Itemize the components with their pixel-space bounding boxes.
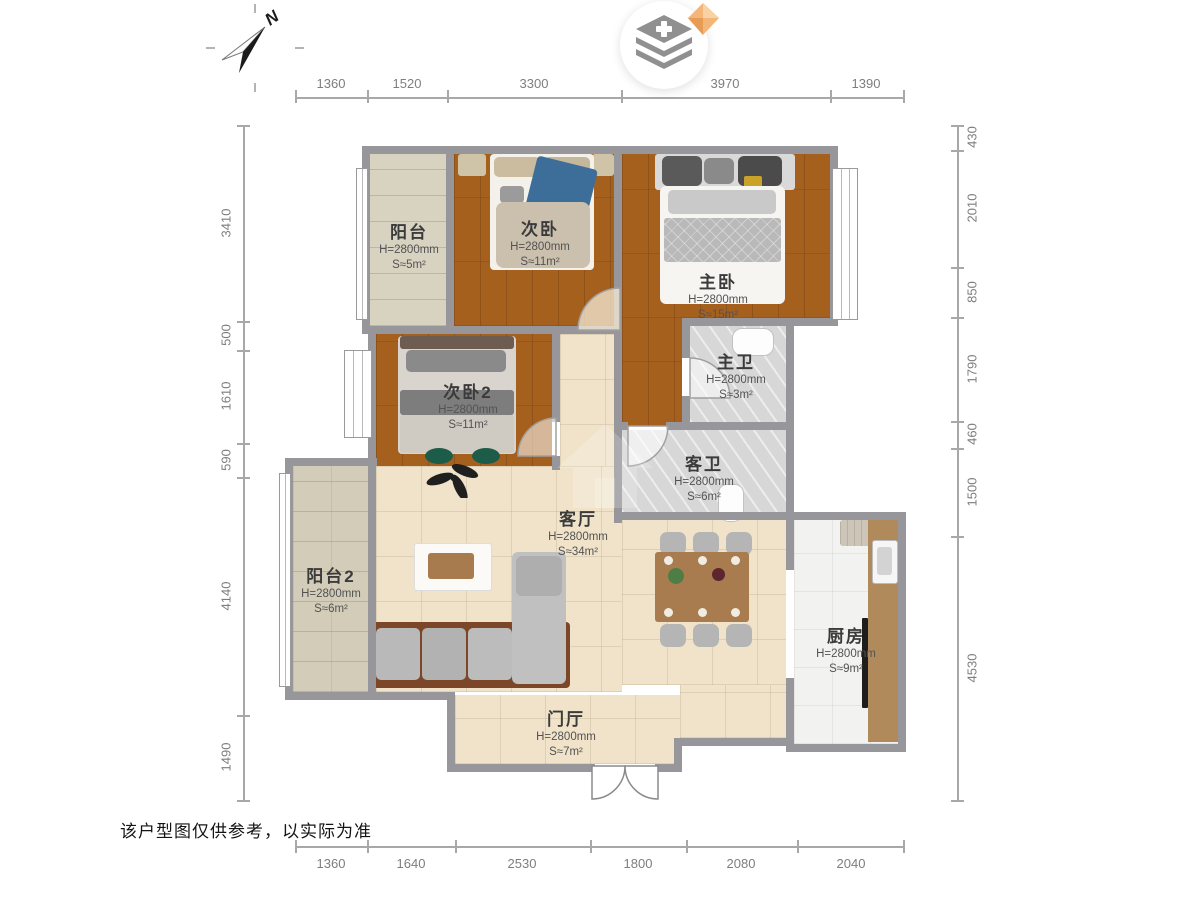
wall-segment	[786, 744, 906, 752]
dim-tick	[237, 125, 250, 127]
dining-chair	[693, 624, 719, 647]
headboard	[400, 336, 514, 349]
room-name: 阳台2	[301, 562, 361, 587]
room-label-balcony1: 阳台 H=2800mm S≈5m²	[379, 218, 439, 273]
sofa-cushion	[516, 556, 562, 596]
room-area: S≈15m²	[688, 308, 748, 323]
wall-segment	[447, 764, 595, 772]
wardrobe-item	[662, 156, 702, 186]
dim-tick	[951, 800, 964, 802]
dim-tick	[951, 125, 964, 127]
room-area: S≈3m²	[706, 388, 766, 403]
watermark-house-icon	[545, 408, 665, 518]
dim-tick	[951, 317, 964, 319]
sofa-cushion	[422, 628, 466, 680]
compass-north-arrow: N	[198, 2, 308, 94]
entry-double-door	[585, 764, 665, 804]
wall-segment	[682, 318, 690, 358]
dim-tick	[237, 350, 250, 352]
dim-label: 1790	[965, 355, 980, 384]
dim-tick	[830, 90, 832, 103]
room-name: 阳台	[379, 218, 439, 243]
dim-tick	[237, 715, 250, 717]
room-label-masterbath: 主卫 H=2800mm S≈3m²	[706, 348, 766, 403]
plate	[731, 556, 740, 565]
room-area: S≈7m²	[536, 745, 596, 760]
dim-label: 2530	[508, 856, 537, 871]
room-height: H=2800mm	[438, 403, 498, 418]
room-label-guestbath: 客卫 H=2800mm S≈6m²	[674, 450, 734, 505]
room-height: H=2800mm	[674, 475, 734, 490]
window-balcony1	[356, 168, 368, 320]
room-name: 客厅	[548, 505, 608, 530]
room-label-kitchen: 厨房 H=2800mm S≈9m²	[816, 622, 876, 677]
room-height: H=2800mm	[536, 730, 596, 745]
room-label-balcony2: 阳台2 H=2800mm S≈6m²	[301, 562, 361, 617]
wall-segment	[368, 466, 376, 692]
room-height: H=2800mm	[379, 243, 439, 258]
dim-line-top	[295, 97, 905, 99]
wall-segment	[285, 692, 455, 700]
dim-tick	[951, 267, 964, 269]
dim-label: 3970	[711, 76, 740, 91]
room-label-bedroom3: 次卧2 H=2800mm S≈11m²	[438, 378, 498, 433]
gem-icon	[686, 2, 722, 38]
dim-tick	[590, 840, 592, 853]
dim-tick	[797, 840, 799, 853]
dim-label: 1500	[965, 478, 980, 507]
dim-label: 850	[965, 281, 980, 303]
dim-line-bottom	[295, 846, 905, 848]
room-area: S≈6m²	[674, 490, 734, 505]
room-height: H=2800mm	[548, 530, 608, 545]
wall-segment	[362, 146, 838, 154]
room-height: H=2800mm	[688, 293, 748, 308]
dim-tick	[903, 840, 905, 853]
dim-label: 500	[219, 324, 234, 346]
dim-tick	[686, 840, 688, 853]
dining-chair	[660, 624, 686, 647]
dim-label: 2040	[837, 856, 866, 871]
dim-label: 1490	[219, 743, 234, 772]
room-name: 主卫	[706, 348, 766, 373]
dim-tick	[951, 448, 964, 450]
room-height: H=2800mm	[301, 587, 361, 602]
room-name: 厨房	[816, 622, 876, 647]
plate	[698, 608, 707, 617]
door-arc-master	[575, 285, 625, 335]
plate	[731, 608, 740, 617]
dim-label: 1390	[852, 76, 881, 91]
dim-label: 4530	[965, 654, 980, 683]
room-area: S≈11m²	[438, 418, 498, 433]
plate	[664, 608, 673, 617]
dim-tick	[237, 800, 250, 802]
dim-tick	[237, 321, 250, 323]
sofa-cushion	[376, 628, 420, 680]
dim-tick	[367, 90, 369, 103]
dim-label: 1640	[397, 856, 426, 871]
room-height: H=2800mm	[816, 647, 876, 662]
dim-tick	[621, 90, 623, 103]
pillow-row	[406, 350, 506, 372]
wall-segment	[285, 458, 377, 466]
dining-chair	[726, 624, 752, 647]
pillow-row	[668, 190, 776, 214]
ceiling-fan-icon	[425, 458, 481, 498]
dim-label: 3300	[520, 76, 549, 91]
plate	[698, 556, 707, 565]
dim-label: 430	[965, 126, 980, 148]
plate	[664, 556, 673, 565]
window-bedroom3	[344, 350, 372, 438]
dim-label: 3410	[219, 209, 234, 238]
wall-segment	[666, 422, 792, 430]
window-master	[832, 168, 858, 320]
room-name: 主卧	[688, 268, 748, 293]
room-name: 次卧	[510, 215, 570, 240]
dim-label: 1610	[219, 382, 234, 411]
room-label-master: 主卧 H=2800mm S≈15m²	[688, 268, 748, 323]
dim-tick	[951, 150, 964, 152]
room-label-bedroom2: 次卧 H=2800mm S≈11m²	[510, 215, 570, 270]
dim-label: 2010	[965, 194, 980, 223]
room-name: 次卧2	[438, 378, 498, 403]
dim-label: 460	[965, 423, 980, 445]
wall-segment	[446, 146, 454, 334]
wall-segment	[786, 318, 838, 326]
dim-line-right	[957, 125, 959, 800]
dim-tick	[903, 90, 905, 103]
cushion	[500, 186, 524, 203]
floorplan-page: 阳台 H=2800mm S≈5m² 次卧 H=2800mm S≈11m² 主卧 …	[0, 0, 1200, 900]
room-height: H=2800mm	[706, 373, 766, 388]
room-name: 客卫	[674, 450, 734, 475]
room-area: S≈5m²	[379, 258, 439, 273]
tv-cabinet-top	[428, 553, 474, 579]
room-area: S≈9m²	[816, 662, 876, 677]
room-label-living: 客厅 H=2800mm S≈34m²	[548, 505, 608, 560]
sink-basin	[877, 547, 892, 575]
wall-segment	[447, 692, 455, 772]
room-height: H=2800mm	[510, 240, 570, 255]
room-area: S≈11m²	[510, 255, 570, 270]
sofa-cushion	[468, 628, 512, 680]
dim-tick	[951, 536, 964, 538]
wall-segment	[898, 512, 906, 752]
dim-label: 1360	[317, 76, 346, 91]
disclaimer-text: 该户型图仅供参考，以实际为准	[120, 817, 372, 842]
dim-tick	[455, 840, 457, 853]
dim-line-left	[243, 125, 245, 800]
dim-label: 1520	[393, 76, 422, 91]
plant	[668, 568, 684, 584]
compass-n-label: N	[261, 6, 283, 29]
room-area: S≈6m²	[301, 602, 361, 617]
window-balcony2	[279, 473, 291, 687]
nightstand	[458, 154, 486, 176]
dim-tick	[237, 443, 250, 445]
room-name: 门厅	[536, 705, 596, 730]
wall-segment	[786, 512, 794, 570]
dim-label: 1360	[317, 856, 346, 871]
room-floor-foyer-east	[680, 685, 786, 738]
room-label-foyer: 门厅 H=2800mm S≈7m²	[536, 705, 596, 760]
room-area: S≈34m²	[548, 545, 608, 560]
dim-tick	[447, 90, 449, 103]
dim-label: 590	[219, 449, 234, 471]
dim-label: 4140	[219, 582, 234, 611]
bowl	[712, 568, 725, 581]
quilt	[664, 218, 781, 262]
dim-label: 1800	[624, 856, 653, 871]
dim-tick	[237, 477, 250, 479]
dim-label: 2080	[727, 856, 756, 871]
wardrobe-item	[704, 158, 734, 184]
wall-segment	[674, 738, 792, 746]
dim-tick	[951, 421, 964, 423]
